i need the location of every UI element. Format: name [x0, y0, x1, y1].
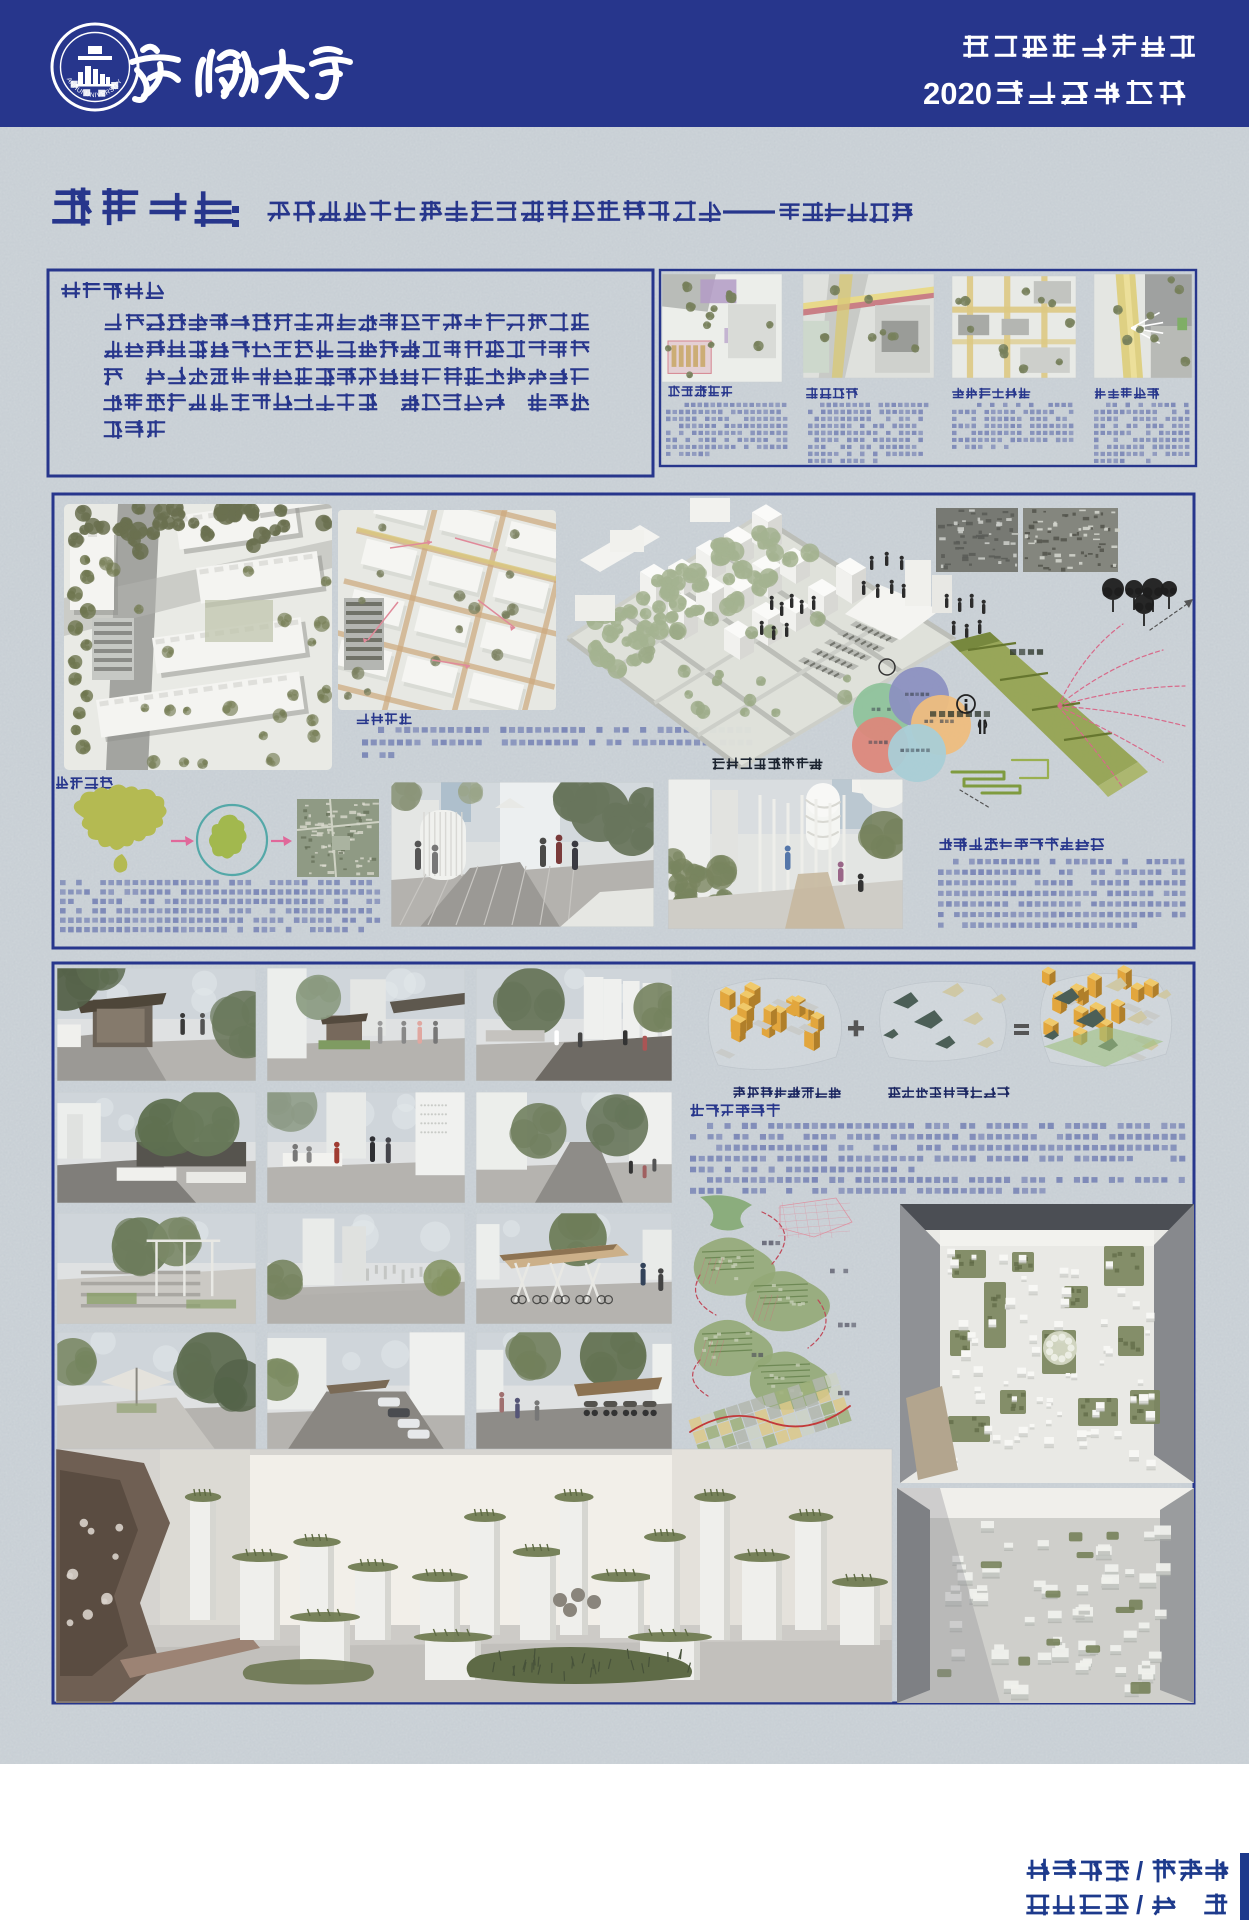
- svg-text:2020: 2020: [923, 76, 992, 111]
